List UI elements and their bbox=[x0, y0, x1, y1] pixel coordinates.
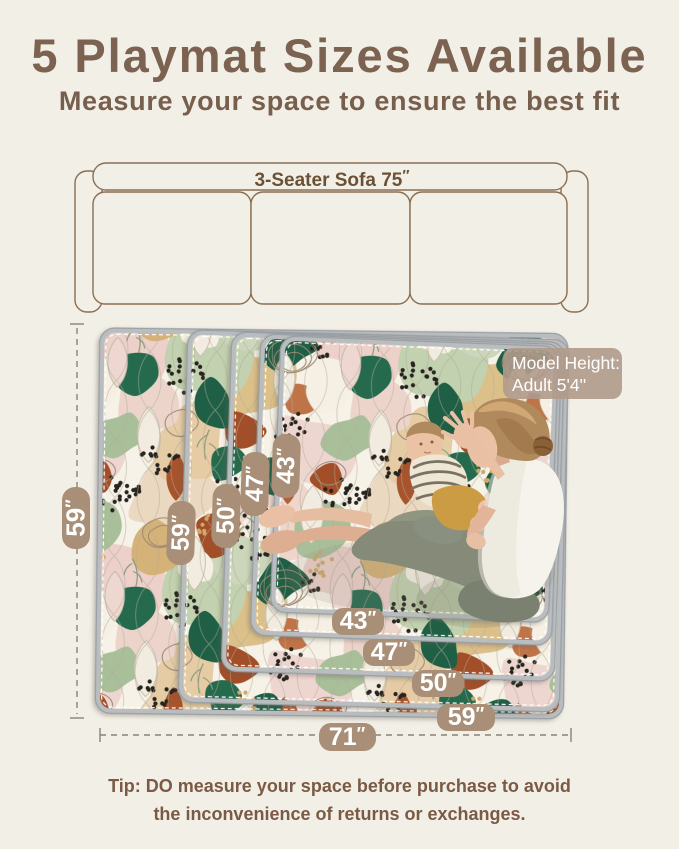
svg-text:3-Seater Sofa 75″: 3-Seater Sofa 75″ bbox=[254, 167, 409, 191]
svg-text:Adult 5'4'': Adult 5'4'' bbox=[512, 375, 586, 395]
svg-text:Model Height:: Model Height: bbox=[512, 353, 620, 373]
